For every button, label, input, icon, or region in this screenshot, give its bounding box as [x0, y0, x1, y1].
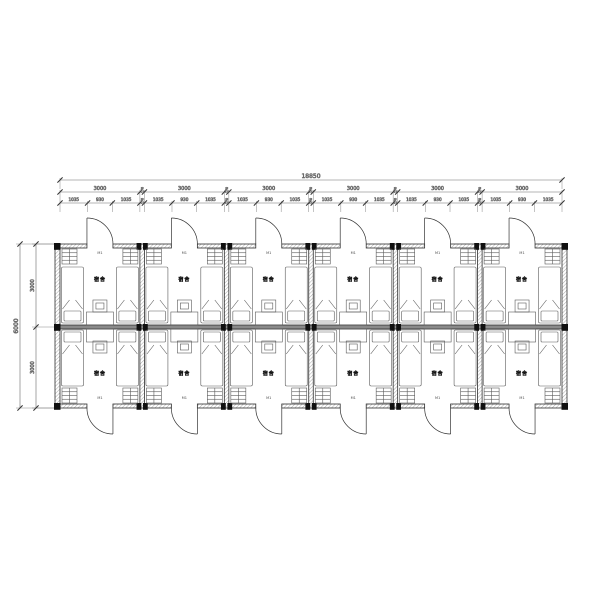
door-mark-label: M1: [182, 396, 187, 400]
dim-label: 1035: [322, 197, 333, 202]
blanket-fold-line: [215, 345, 222, 354]
dim-label: 3000: [262, 186, 275, 192]
room-top-3: 宿舍M1: [230, 218, 307, 325]
column-marker: [54, 324, 61, 331]
stool-inner-detail: [349, 344, 357, 350]
door-swing-arc: [87, 408, 113, 434]
top-wall-segment: [482, 244, 509, 248]
door-symbol: [171, 218, 197, 244]
pillow-symbol: [148, 332, 165, 342]
bed-symbol: [484, 267, 506, 323]
room-bottom-3: 宿舍M1: [230, 329, 307, 434]
dim-label: 1035: [491, 197, 502, 202]
blanket-fold-line: [231, 345, 238, 354]
column-marker: [312, 403, 317, 410]
pillow-symbol: [372, 332, 389, 342]
room-label: 宿舍: [432, 276, 444, 283]
pillow-symbol: [119, 332, 136, 342]
blanket-fold-line: [299, 345, 306, 354]
dim-row-total: 18850: [57, 173, 564, 189]
room-bottom-4: 宿舍M1: [315, 329, 392, 434]
door-swing-arc: [509, 218, 535, 244]
bed-symbol: [201, 267, 223, 323]
dim-label: 3000: [347, 186, 360, 192]
bed-symbol: [399, 330, 421, 386]
bottom-wall-segment: [535, 404, 562, 408]
top-wall-segment: [535, 244, 562, 248]
bottom-wall-segment: [113, 404, 140, 408]
room-top-2: 宿舍M1: [146, 218, 223, 325]
door-mark-label: M1: [97, 396, 102, 400]
cad-sheet: 1885030001703000170300017030001703000170…: [0, 0, 600, 600]
stool-symbol: [515, 300, 529, 312]
bottom-wall-segment: [313, 404, 340, 408]
dim-label: 3000: [178, 186, 191, 192]
top-wall-segment: [197, 244, 224, 248]
door-swing-arc: [340, 218, 366, 244]
bottom-wall-segment: [197, 404, 224, 408]
blanket-fold-line: [384, 345, 391, 354]
blanket-fold-line: [299, 300, 306, 309]
blanket-fold-line: [455, 300, 462, 309]
door-mark-label: M1: [435, 396, 440, 400]
dim-label-joint: 170: [140, 198, 144, 204]
bottom-wall-segment: [482, 404, 509, 408]
column-marker: [474, 403, 479, 410]
stool-symbol: [346, 341, 360, 353]
door-swing-arc: [87, 218, 113, 244]
pillow-symbol: [457, 311, 474, 321]
room-label: 宿舍: [347, 370, 359, 377]
door-symbol: [256, 218, 282, 244]
blanket-fold-line: [117, 300, 124, 309]
door-swing-arc: [509, 408, 535, 434]
bed-symbol: [315, 330, 337, 386]
column-marker: [562, 243, 569, 250]
top-wall-segment: [144, 244, 171, 248]
pillow-symbol: [486, 332, 503, 342]
dim-label: 6000: [13, 318, 20, 333]
blanket-fold-line: [498, 300, 505, 309]
dim-label: 1035: [290, 197, 301, 202]
column-marker: [396, 403, 401, 410]
blanket-fold-line: [286, 345, 293, 354]
dim-label-joint: 170: [394, 198, 398, 204]
pillow-symbol: [317, 332, 334, 342]
dim-label-joint: 170: [225, 187, 229, 193]
pillow-symbol: [203, 311, 220, 321]
pillow-symbol: [203, 332, 220, 342]
room-bottom-2: 宿舍M1: [146, 329, 223, 434]
desk-symbol: [86, 312, 113, 325]
dim-label-joint: 170: [309, 187, 313, 193]
stool-symbol: [431, 341, 445, 353]
room-label: 宿舍: [178, 276, 190, 283]
blanket-fold-line: [540, 300, 547, 309]
top-wall-segment: [282, 244, 309, 248]
blanket-fold-line: [76, 300, 83, 309]
door-symbol: [425, 218, 451, 244]
bed-symbol: [146, 267, 168, 323]
stool-symbol: [515, 341, 529, 353]
bottom-wall-segment: [451, 404, 478, 408]
column-marker: [390, 403, 395, 410]
pillow-symbol: [288, 332, 305, 342]
blanket-fold-line: [553, 345, 560, 354]
stool-symbol: [93, 341, 107, 353]
stool-inner-detail: [434, 303, 442, 309]
pillow-symbol: [148, 311, 165, 321]
pillow-symbol: [288, 311, 305, 321]
stool-inner-detail: [265, 344, 273, 350]
top-wall-segment: [113, 244, 140, 248]
desk-symbol: [340, 329, 367, 342]
desk-symbol: [424, 329, 451, 342]
blanket-fold-line: [147, 345, 154, 354]
blanket-fold-line: [202, 345, 209, 354]
blanket-fold-line: [400, 345, 407, 354]
bottom-wall-segment: [144, 404, 171, 408]
top-wall-segment: [451, 244, 478, 248]
pillow-symbol: [457, 332, 474, 342]
dim-label: 3000: [30, 279, 36, 292]
bed-symbol: [62, 330, 84, 386]
column-marker: [54, 403, 61, 410]
blanket-fold-line: [160, 300, 167, 309]
blanket-fold-line: [316, 300, 323, 309]
bed-symbol: [454, 267, 476, 323]
stool-inner-detail: [180, 344, 188, 350]
door-symbol: [87, 218, 113, 244]
blanket-fold-line: [400, 300, 407, 309]
bed-symbol: [146, 330, 168, 386]
door-mark-label: M1: [519, 396, 524, 400]
top-wall-segment: [313, 244, 340, 248]
room-label: 宿舍: [263, 370, 275, 377]
bed-symbol: [539, 330, 561, 386]
door-symbol: [509, 218, 535, 244]
blanket-fold-line: [231, 300, 238, 309]
column-marker: [137, 403, 142, 410]
door-mark-label: M1: [435, 251, 440, 255]
door-swing-arc: [340, 408, 366, 434]
room-top-5: 宿舍M1: [399, 218, 476, 325]
blanket-fold-line: [244, 300, 251, 309]
dim-label: 1035: [458, 197, 469, 202]
dim-label: 1035: [543, 197, 554, 202]
stool-inner-detail: [518, 303, 526, 309]
room-label: 宿舍: [347, 276, 359, 283]
room-label: 宿舍: [178, 370, 190, 377]
pillow-symbol: [233, 332, 250, 342]
door-symbol: [171, 408, 197, 434]
dim-label: 1035: [205, 197, 216, 202]
dim-label-joint: 170: [394, 187, 398, 193]
door-symbol: [87, 408, 113, 434]
pillow-symbol: [317, 311, 334, 321]
column-marker: [227, 403, 232, 410]
dim-label: 1035: [121, 197, 132, 202]
door-swing-arc: [256, 408, 282, 434]
door-mark-label: M1: [266, 251, 271, 255]
blanket-fold-line: [202, 300, 209, 309]
column-marker: [221, 403, 226, 410]
blanket-fold-line: [244, 345, 251, 354]
door-symbol: [340, 218, 366, 244]
room-top-6: 宿舍M1: [484, 218, 561, 325]
bottom-wall-segment: [366, 404, 393, 408]
stool-inner-detail: [434, 344, 442, 350]
bed-symbol: [370, 330, 392, 386]
blanket-fold-line: [413, 345, 420, 354]
walls: [55, 244, 567, 408]
plan-group: 1885030001703000170300017030001703000170…: [13, 173, 568, 434]
desk-symbol: [340, 312, 367, 325]
dim-label: 930: [96, 197, 104, 202]
column-marker: [305, 403, 310, 410]
desk-symbol: [171, 329, 198, 342]
top-wall-segment: [229, 244, 256, 248]
dim-label: 3000: [431, 186, 444, 192]
dim-label-joint: 170: [478, 187, 482, 193]
bottom-wall-segment: [398, 404, 425, 408]
desk-symbol: [255, 329, 282, 342]
room-bottom-1: 宿舍M1: [62, 329, 139, 434]
pillow-symbol: [402, 332, 419, 342]
desk-symbol: [509, 329, 536, 342]
door-swing-arc: [171, 218, 197, 244]
pillow-symbol: [486, 311, 503, 321]
blanket-fold-line: [160, 345, 167, 354]
bed-symbol: [399, 267, 421, 323]
door-symbol: [425, 408, 451, 434]
blanket-fold-line: [455, 345, 462, 354]
door-mark-label: M1: [519, 251, 524, 255]
room-top-4: 宿舍M1: [315, 218, 392, 325]
stool-inner-detail: [96, 303, 104, 309]
dim-label: 930: [349, 197, 357, 202]
desk-symbol: [255, 312, 282, 325]
stool-symbol: [346, 300, 360, 312]
stool-inner-detail: [265, 303, 273, 309]
bed-symbol: [62, 267, 84, 323]
bed-symbol: [539, 267, 561, 323]
bottom-wall-segment: [60, 404, 87, 408]
blanket-fold-line: [371, 345, 378, 354]
door-swing-arc: [425, 408, 451, 434]
stool-inner-detail: [518, 344, 526, 350]
column-marker: [143, 403, 148, 410]
blanket-fold-line: [540, 345, 547, 354]
pillow-symbol: [541, 332, 558, 342]
dim-col-total: 6000: [13, 241, 54, 410]
bed-symbol: [285, 267, 307, 323]
blanket-fold-line: [485, 345, 492, 354]
room-label: 宿舍: [263, 276, 275, 283]
blanket-fold-line: [371, 300, 378, 309]
stool-inner-detail: [180, 303, 188, 309]
blanket-fold-line: [485, 300, 492, 309]
door-swing-arc: [171, 408, 197, 434]
blanket-fold-line: [215, 300, 222, 309]
blanket-fold-line: [468, 345, 475, 354]
blanket-fold-line: [130, 300, 137, 309]
stool-inner-detail: [96, 344, 104, 350]
pillow-symbol: [372, 311, 389, 321]
room-bottom-5: 宿舍M1: [399, 329, 476, 434]
door-mark-label: M1: [97, 251, 102, 255]
dim-label: 1035: [237, 197, 248, 202]
bed-symbol: [484, 330, 506, 386]
floor-plan-drawing: 1885030001703000170300017030001703000170…: [0, 0, 600, 600]
dim-label: 1035: [153, 197, 164, 202]
dim-label: 930: [180, 197, 188, 202]
blanket-fold-line: [76, 345, 83, 354]
stool-inner-detail: [349, 303, 357, 309]
bed-symbol: [370, 267, 392, 323]
blanket-fold-line: [130, 345, 137, 354]
dim-label: 930: [265, 197, 273, 202]
dim-label: 3000: [94, 186, 107, 192]
blanket-fold-line: [329, 345, 336, 354]
pillow-symbol: [64, 311, 81, 321]
bed-symbol: [230, 330, 252, 386]
column-marker: [54, 243, 61, 250]
blanket-fold-line: [498, 345, 505, 354]
top-wall-segment: [366, 244, 393, 248]
blanket-fold-line: [384, 300, 391, 309]
room-label: 宿舍: [432, 370, 444, 377]
dim-label-joint: 170: [309, 198, 313, 204]
room-label: 宿舍: [516, 370, 528, 377]
room-bottom-6: 宿舍M1: [484, 329, 561, 434]
door-mark-label: M1: [182, 251, 187, 255]
blanket-fold-line: [63, 345, 70, 354]
door-swing-arc: [425, 218, 451, 244]
door-mark-label: M1: [266, 396, 271, 400]
stool-symbol: [431, 300, 445, 312]
dim-label: 1035: [406, 197, 417, 202]
blanket-fold-line: [147, 300, 154, 309]
door-symbol: [509, 408, 535, 434]
desk-symbol: [509, 312, 536, 325]
door-mark-label: M1: [351, 396, 356, 400]
stool-symbol: [177, 341, 191, 353]
desk-symbol: [171, 312, 198, 325]
room-top-1: 宿舍M1: [62, 218, 139, 325]
stool-symbol: [262, 341, 276, 353]
dim-col-halves: 30003000: [30, 241, 54, 410]
dim-label-joint: 170: [140, 187, 144, 193]
column-marker: [562, 403, 569, 410]
pillow-symbol: [119, 311, 136, 321]
top-wall-segment: [398, 244, 425, 248]
desk-symbol: [86, 329, 113, 342]
door-symbol: [340, 408, 366, 434]
room-label: 宿舍: [94, 370, 106, 377]
pillow-symbol: [233, 311, 250, 321]
bed-symbol: [201, 330, 223, 386]
bed-symbol: [285, 330, 307, 386]
stool-symbol: [93, 300, 107, 312]
pillow-symbol: [64, 332, 81, 342]
bed-symbol: [230, 267, 252, 323]
bed-symbol: [454, 330, 476, 386]
dim-label: 1035: [374, 197, 385, 202]
pillow-symbol: [402, 311, 419, 321]
bed-symbol: [315, 267, 337, 323]
bed-symbol: [116, 330, 138, 386]
room-label: 宿舍: [516, 276, 528, 283]
pillow-symbol: [541, 311, 558, 321]
room-label: 宿舍: [94, 276, 106, 283]
blanket-fold-line: [553, 300, 560, 309]
desk-symbol: [424, 312, 451, 325]
blanket-fold-line: [117, 345, 124, 354]
dim-label: 930: [434, 197, 442, 202]
blanket-fold-line: [286, 300, 293, 309]
dim-label: 18850: [301, 173, 320, 180]
door-swing-arc: [256, 218, 282, 244]
bottom-wall-segment: [282, 404, 309, 408]
bed-symbol: [116, 267, 138, 323]
blanket-fold-line: [329, 300, 336, 309]
door-symbol: [256, 408, 282, 434]
dim-label: 3000: [30, 361, 36, 374]
blanket-fold-line: [63, 300, 70, 309]
stool-symbol: [262, 300, 276, 312]
blanket-fold-line: [468, 300, 475, 309]
dim-label-joint: 170: [225, 198, 229, 204]
dim-label: 930: [518, 197, 526, 202]
column-marker: [562, 324, 569, 331]
top-wall-segment: [60, 244, 87, 248]
dim-label: 3000: [516, 186, 529, 192]
stool-symbol: [177, 300, 191, 312]
blanket-fold-line: [413, 300, 420, 309]
dim-label-joint: 170: [478, 198, 482, 204]
middle-wall: [55, 325, 567, 329]
dim-row-subdivisions: 1035930103517010359301035170103593010351…: [57, 197, 564, 212]
door-mark-label: M1: [351, 251, 356, 255]
dim-label: 1035: [68, 197, 79, 202]
blanket-fold-line: [316, 345, 323, 354]
bottom-wall-segment: [229, 404, 256, 408]
column-marker: [481, 403, 486, 410]
